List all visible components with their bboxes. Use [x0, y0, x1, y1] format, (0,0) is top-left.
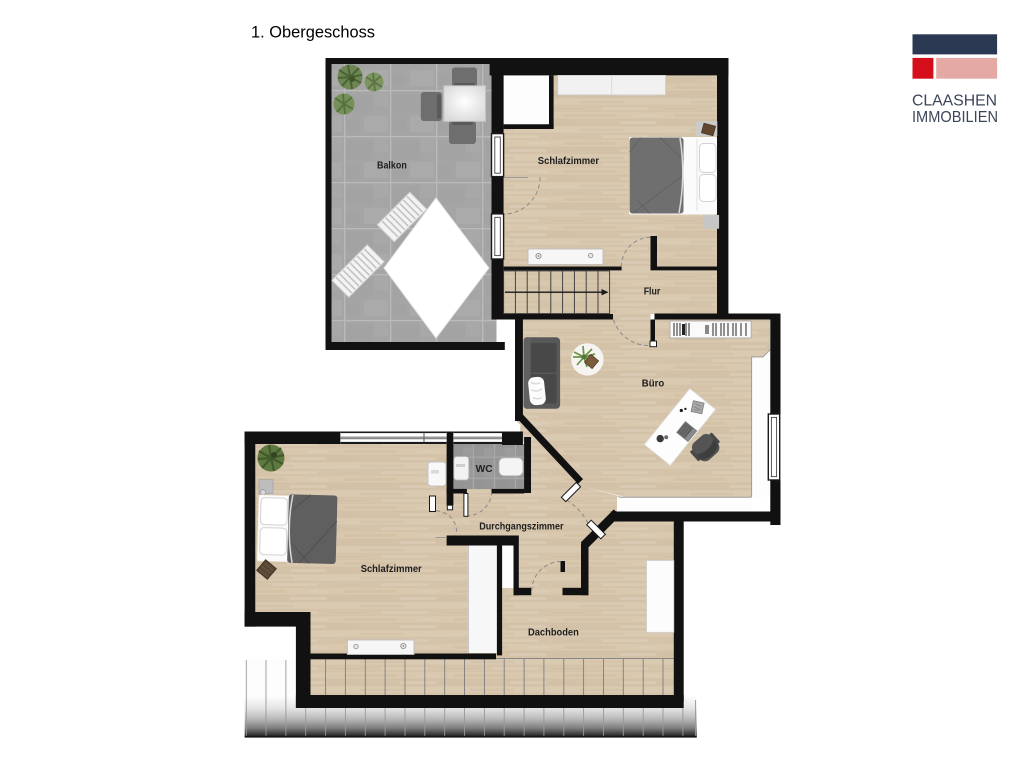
svg-text:WC: WC: [476, 463, 493, 475]
svg-text:Flur: Flur: [644, 286, 661, 298]
svg-text:Büro: Büro: [642, 378, 664, 390]
svg-text:Durchgangszimmer: Durchgangszimmer: [479, 520, 563, 532]
svg-text:Balkon: Balkon: [377, 159, 407, 171]
svg-text:CLAASHEN: CLAASHEN: [912, 92, 997, 109]
svg-text:1. Obergeschoss: 1. Obergeschoss: [251, 22, 375, 41]
svg-text:Dachboden: Dachboden: [528, 627, 579, 639]
svg-text:Schlafzimmer: Schlafzimmer: [361, 563, 422, 575]
svg-text:Schlafzimmer: Schlafzimmer: [538, 155, 599, 167]
svg-text:IMMOBILIEN: IMMOBILIEN: [912, 109, 998, 126]
